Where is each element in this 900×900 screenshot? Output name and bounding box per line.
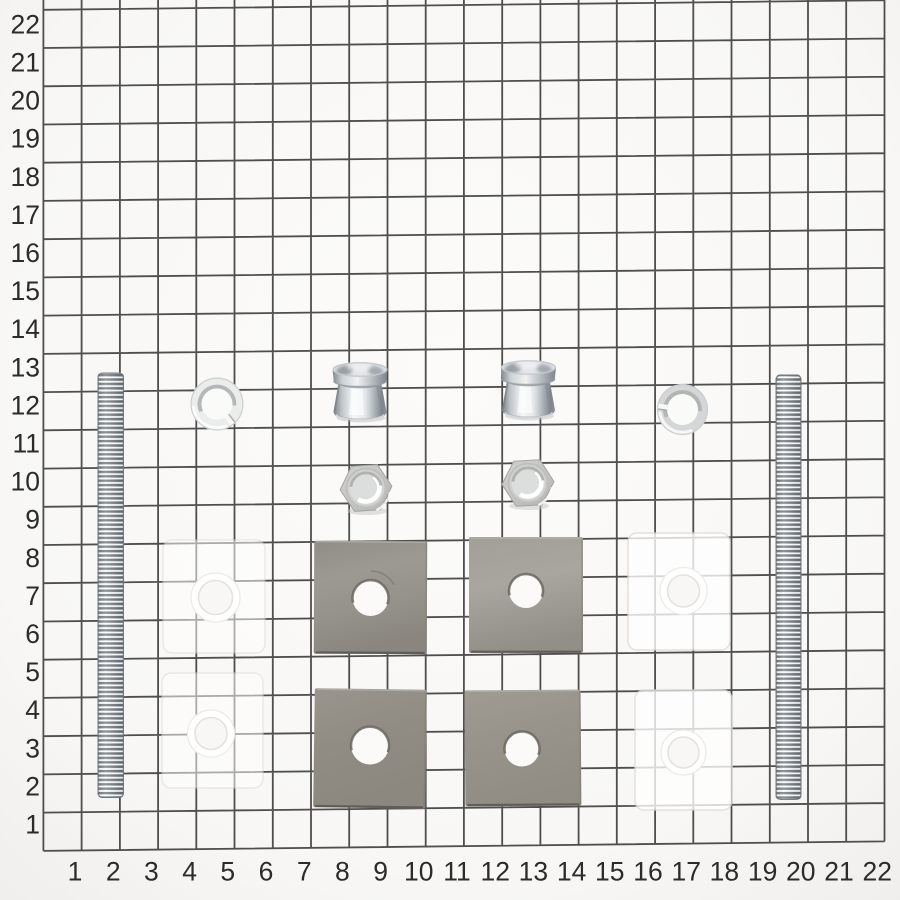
svg-text:10: 10 bbox=[404, 857, 433, 887]
svg-text:8: 8 bbox=[25, 543, 40, 573]
svg-text:19: 19 bbox=[748, 857, 777, 887]
svg-text:7: 7 bbox=[297, 857, 312, 887]
svg-text:15: 15 bbox=[11, 276, 40, 306]
svg-text:11: 11 bbox=[443, 857, 471, 887]
svg-text:13: 13 bbox=[519, 857, 548, 887]
svg-text:5: 5 bbox=[220, 857, 235, 887]
svg-text:7: 7 bbox=[25, 581, 40, 611]
svg-text:5: 5 bbox=[25, 657, 40, 687]
svg-text:12: 12 bbox=[11, 390, 40, 420]
svg-text:2: 2 bbox=[106, 857, 121, 887]
svg-text:15: 15 bbox=[595, 857, 624, 887]
svg-text:14: 14 bbox=[557, 857, 586, 887]
svg-text:9: 9 bbox=[25, 505, 40, 535]
svg-text:22: 22 bbox=[862, 857, 891, 887]
svg-text:19: 19 bbox=[11, 124, 40, 154]
svg-text:3: 3 bbox=[144, 857, 159, 887]
svg-text:14: 14 bbox=[11, 314, 40, 344]
svg-text:18: 18 bbox=[710, 857, 739, 887]
svg-text:17: 17 bbox=[671, 857, 700, 887]
svg-text:12: 12 bbox=[480, 857, 509, 887]
svg-text:11: 11 bbox=[12, 429, 40, 459]
svg-text:6: 6 bbox=[25, 619, 40, 649]
svg-text:2: 2 bbox=[25, 771, 40, 801]
svg-text:4: 4 bbox=[25, 695, 40, 725]
svg-text:4: 4 bbox=[182, 857, 197, 887]
svg-text:22: 22 bbox=[11, 9, 40, 39]
svg-text:17: 17 bbox=[11, 200, 40, 230]
svg-text:20: 20 bbox=[786, 857, 815, 887]
svg-text:21: 21 bbox=[11, 48, 40, 78]
svg-text:18: 18 bbox=[11, 162, 40, 192]
svg-text:16: 16 bbox=[11, 238, 40, 268]
svg-text:16: 16 bbox=[633, 857, 662, 887]
svg-text:13: 13 bbox=[11, 352, 40, 382]
svg-text:1: 1 bbox=[68, 857, 83, 887]
svg-text:6: 6 bbox=[259, 857, 274, 887]
svg-text:1: 1 bbox=[25, 810, 40, 840]
svg-text:8: 8 bbox=[335, 857, 350, 887]
svg-text:9: 9 bbox=[373, 857, 388, 887]
svg-text:21: 21 bbox=[824, 857, 853, 887]
svg-text:10: 10 bbox=[11, 467, 40, 497]
svg-text:20: 20 bbox=[11, 86, 40, 116]
svg-text:3: 3 bbox=[25, 733, 40, 763]
